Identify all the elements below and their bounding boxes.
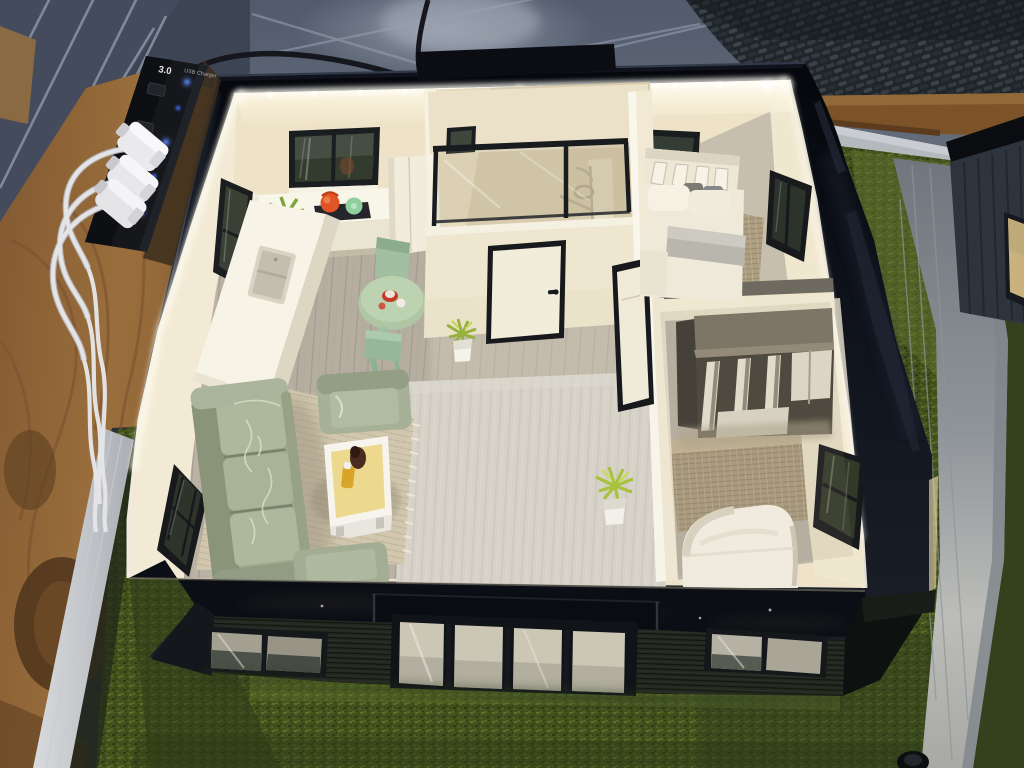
svg-text:3.0: 3.0: [157, 64, 172, 77]
